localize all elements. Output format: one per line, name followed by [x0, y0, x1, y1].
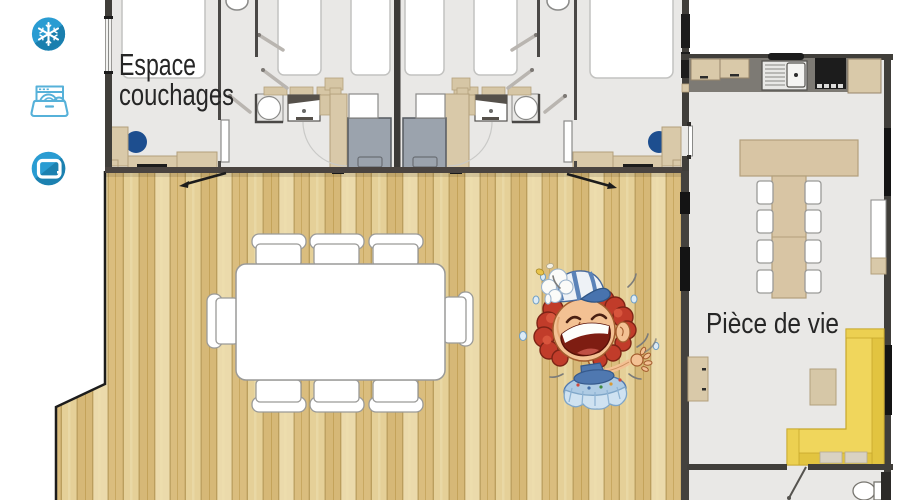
svg-text:Pièce de vie: Pièce de vie: [706, 308, 839, 340]
svg-text:couchages: couchages: [119, 77, 234, 112]
